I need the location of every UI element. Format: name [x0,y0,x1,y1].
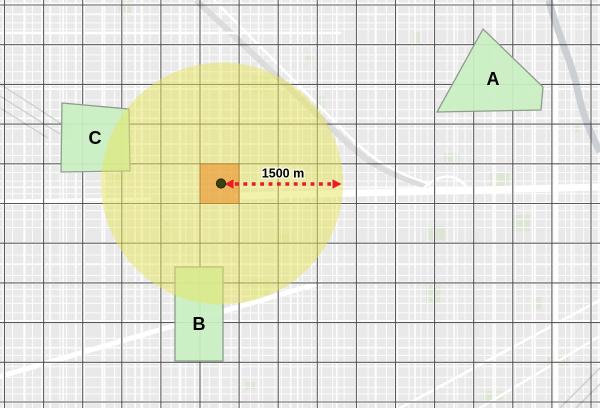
zone-label-b: B [193,314,206,334]
zone-label-a: A [487,69,500,89]
distance-label: 1500 m [262,167,304,181]
center-point [216,179,225,188]
buffer-map: 1500 m A B C [0,0,600,408]
map-figure: 1500 m A B C [0,0,600,408]
zone-label-c: C [89,128,102,148]
